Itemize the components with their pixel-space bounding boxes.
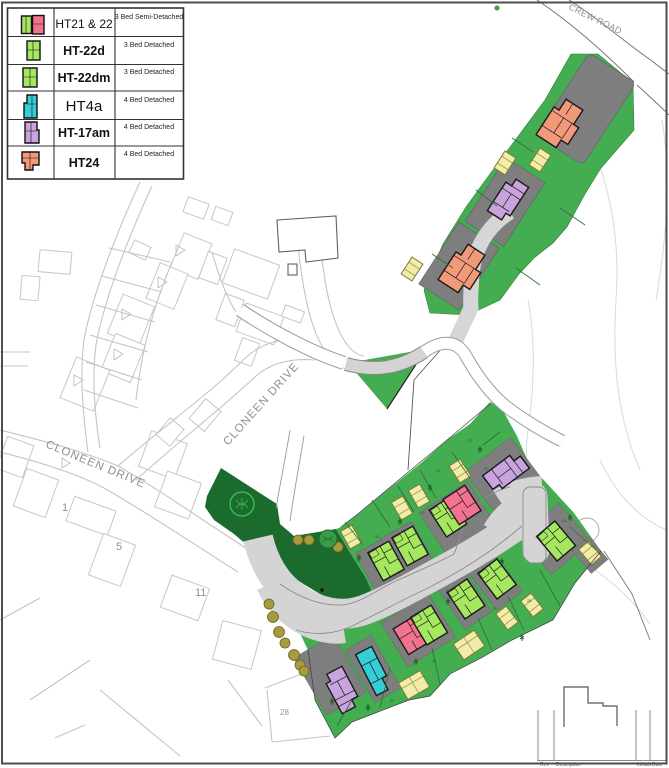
svg-text:5: 5 bbox=[116, 541, 122, 553]
svg-text:HT24: HT24 bbox=[69, 156, 100, 170]
svg-text:1: 1 bbox=[62, 502, 68, 514]
svg-text:3 Bed Detached: 3 Bed Detached bbox=[124, 69, 174, 76]
svg-text:27: 27 bbox=[484, 466, 489, 471]
svg-text:23: 23 bbox=[436, 468, 441, 473]
svg-text:HT-22d: HT-22d bbox=[63, 44, 105, 58]
svg-text:22: 22 bbox=[468, 438, 473, 443]
svg-text:30: 30 bbox=[375, 534, 380, 539]
svg-text:3 Bed Detached: 3 Bed Detached bbox=[124, 42, 174, 49]
svg-text:HT21 & 22: HT21 & 22 bbox=[55, 17, 113, 31]
svg-text:HT-17am: HT-17am bbox=[58, 126, 110, 140]
svg-text:3 Bed Semi-Detached: 3 Bed Semi-Detached bbox=[115, 14, 184, 21]
svg-text:33: 33 bbox=[492, 606, 497, 611]
svg-text:35: 35 bbox=[390, 698, 395, 703]
svg-text:31: 31 bbox=[356, 558, 361, 563]
svg-text:34: 34 bbox=[432, 658, 437, 663]
svg-text:HT-22dm: HT-22dm bbox=[58, 71, 111, 85]
svg-text:28: 28 bbox=[280, 708, 289, 717]
svg-text:4 Bed Detached: 4 Bed Detached bbox=[124, 151, 174, 158]
svg-text:4 Bed Detached: 4 Bed Detached bbox=[124, 124, 174, 131]
svg-text:32: 32 bbox=[446, 588, 451, 593]
svg-text:11: 11 bbox=[195, 587, 206, 599]
svg-text:29: 29 bbox=[420, 510, 425, 515]
svg-text:HT4a: HT4a bbox=[66, 98, 103, 115]
svg-text:4 Bed Detached: 4 Bed Detached bbox=[124, 97, 174, 104]
svg-text:26: 26 bbox=[562, 518, 567, 523]
svg-text:25: 25 bbox=[527, 598, 532, 603]
